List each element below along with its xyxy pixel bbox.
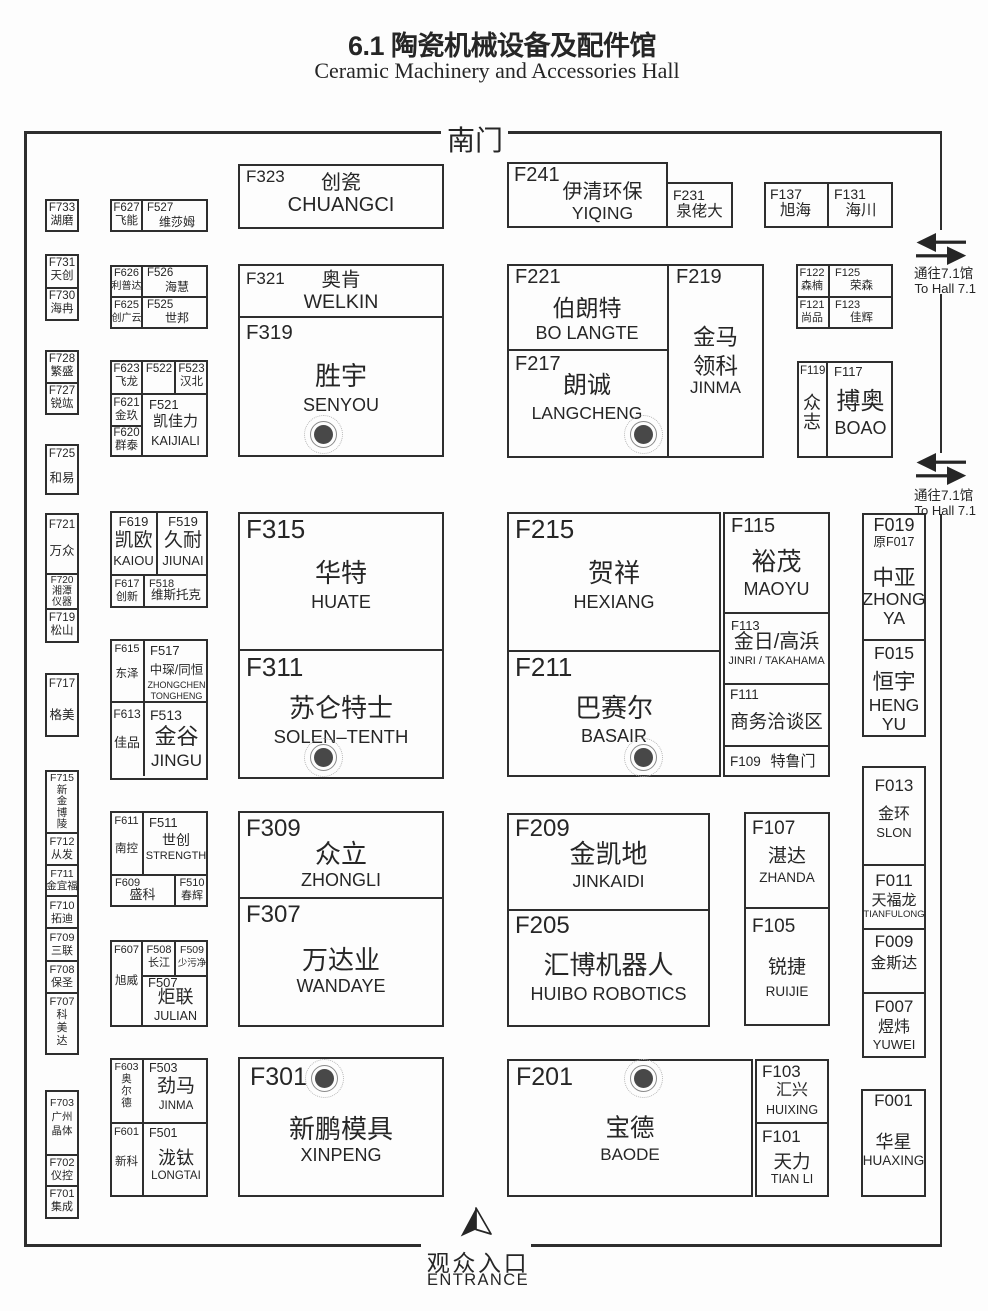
svg-text:通往7.1馆: 通往7.1馆 (914, 488, 973, 503)
svg-text:To Hall 7.1: To Hall 7.1 (915, 281, 976, 296)
svg-text:通往7.1馆: 通往7.1馆 (914, 266, 973, 281)
